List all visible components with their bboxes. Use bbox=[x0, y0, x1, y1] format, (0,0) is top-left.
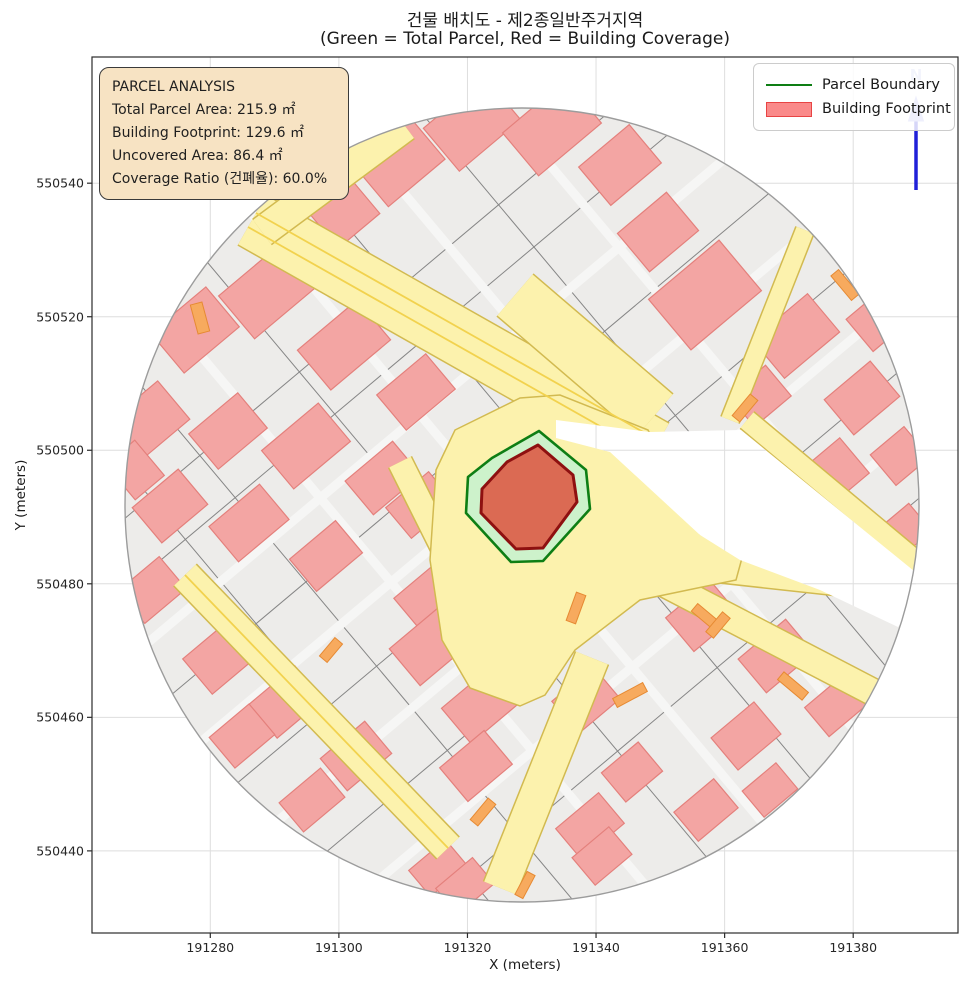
x-tick-label: 191280 bbox=[186, 940, 234, 955]
chart-subtitle: (Green = Total Parcel, Red = Building Co… bbox=[92, 29, 958, 49]
analysis-total-parcel-area: Total Parcel Area: 215.9 ㎡ bbox=[112, 99, 336, 122]
legend: Parcel Boundary Building Footprint bbox=[753, 63, 955, 131]
x-tick-label: 191380 bbox=[829, 940, 877, 955]
y-tick-label: 550520 bbox=[22, 309, 84, 324]
y-tick-label: 550440 bbox=[22, 843, 84, 858]
analysis-building-footprint: Building Footprint: 129.6 ㎡ bbox=[112, 122, 336, 145]
y-tick-label: 550500 bbox=[22, 443, 84, 458]
analysis-box: PARCEL ANALYSIS Total Parcel Area: 215.9… bbox=[99, 67, 349, 200]
y-tick-label: 550460 bbox=[22, 710, 84, 725]
legend-label-building-footprint: Building Footprint bbox=[822, 101, 951, 117]
chart-title: 건물 배치도 - 제2종일반주거지역 bbox=[92, 6, 958, 31]
x-tick-label: 191320 bbox=[444, 940, 492, 955]
building-footprint-patch-swatch bbox=[766, 102, 812, 117]
legend-item-parcel-boundary: Parcel Boundary bbox=[766, 73, 942, 97]
legend-item-building-footprint: Building Footprint bbox=[766, 97, 942, 121]
analysis-uncovered-area: Uncovered Area: 86.4 ㎡ bbox=[112, 145, 336, 168]
x-axis-label: X (meters) bbox=[92, 957, 958, 973]
analysis-coverage-ratio: Coverage Ratio (건폐율): 60.0% bbox=[112, 168, 336, 191]
legend-label-parcel-boundary: Parcel Boundary bbox=[822, 77, 940, 93]
analysis-box-title: PARCEL ANALYSIS bbox=[112, 76, 336, 99]
x-tick-label: 191360 bbox=[701, 940, 749, 955]
x-tick-label: 191300 bbox=[315, 940, 363, 955]
figure: 건물 배치도 - 제2종일반주거지역 (Green = Total Parcel… bbox=[0, 0, 970, 990]
y-tick-label: 550480 bbox=[22, 576, 84, 591]
y-tick-label: 550540 bbox=[22, 176, 84, 191]
x-tick-label: 191340 bbox=[572, 940, 620, 955]
parcel-boundary-line-swatch bbox=[766, 84, 812, 86]
y-axis-label: Y (meters) bbox=[13, 460, 29, 531]
